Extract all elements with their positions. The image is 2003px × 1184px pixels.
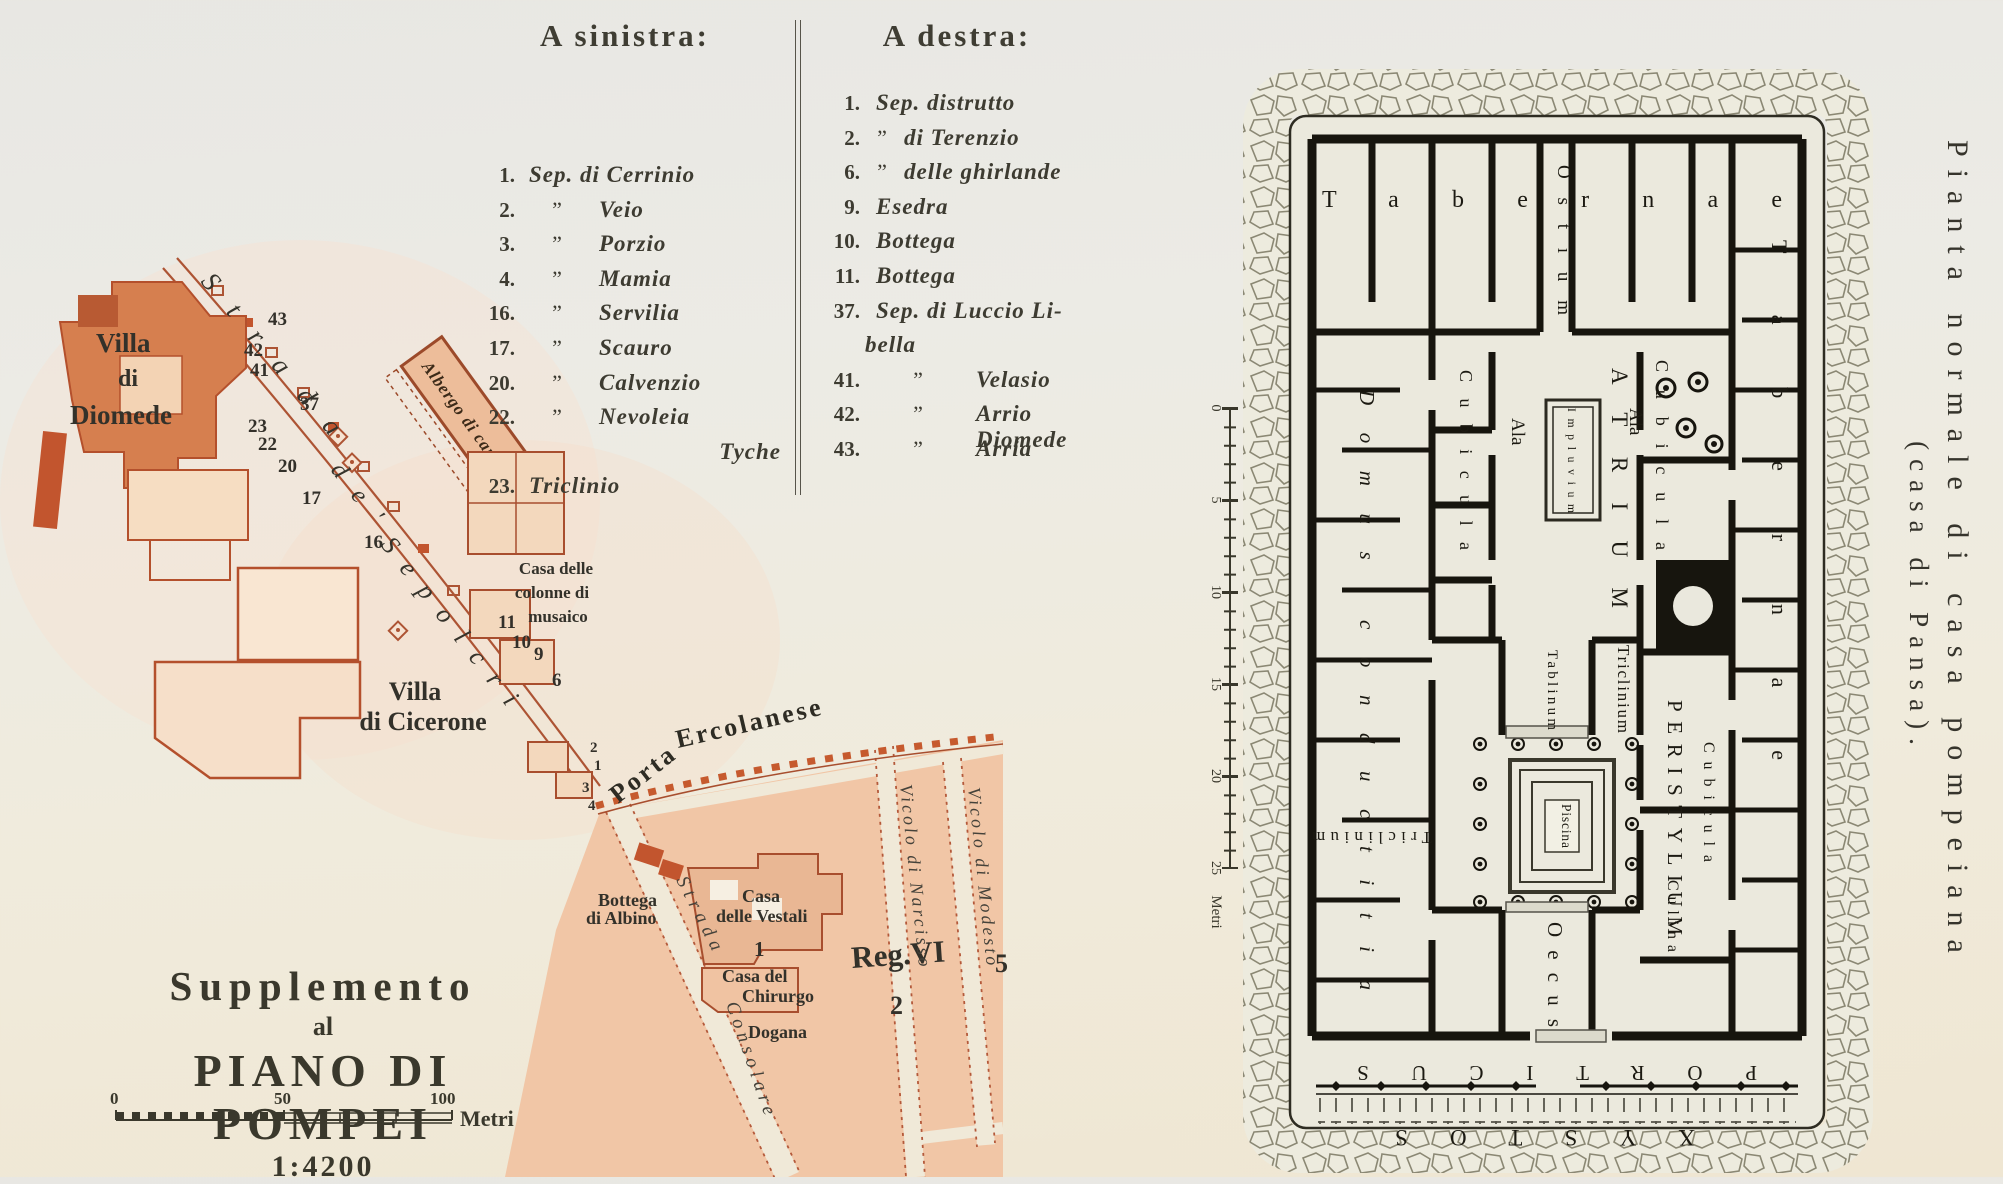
title-block: Supplemento al PIANO DI POMPEI 1:4200 <box>88 962 558 1184</box>
casa-colonne-label-2: colonne di <box>515 583 589 602</box>
legend-row: 2.”Veio <box>455 197 795 232</box>
item-number: 2. <box>812 126 860 151</box>
item-number: 43. <box>812 437 860 462</box>
item-name: bella <box>865 332 1102 358</box>
ditto-mark: ” <box>515 231 599 257</box>
num-9: 9 <box>534 644 544 665</box>
scale-0: 0 <box>1208 405 1223 412</box>
villa-cicerone-label-2: di Cicerone <box>359 707 486 736</box>
legend-row-continuation: bella <box>812 332 1102 367</box>
ditto-mark: ” <box>515 370 599 396</box>
reg-vi-2: 2 <box>890 991 903 1020</box>
legend-row: 6.”delle ghirlande <box>812 159 1102 194</box>
caption-line-1: Pianta normale di casa pompeiana <box>1940 140 1974 1055</box>
item-name: Porzio <box>599 231 795 257</box>
item-number: 3. <box>455 232 515 257</box>
item-name: Calvenzio <box>599 370 795 396</box>
scale-15: 15 <box>1208 677 1223 691</box>
item-number: 42. <box>812 402 860 427</box>
legend-row: 1.Sep. di Cerrinio <box>455 162 795 197</box>
legend-divider <box>795 20 801 495</box>
item-number: 9. <box>812 195 860 220</box>
legend-right-heading: A destra: <box>812 18 1102 54</box>
ditto-mark: ” <box>515 197 599 223</box>
item-number: 16. <box>455 301 515 326</box>
item-name: Veio <box>599 197 795 223</box>
oven-mouth <box>1673 586 1713 626</box>
legend-row: 9.Esedra <box>812 194 1102 229</box>
legend-row: 10.Bottega <box>812 228 1102 263</box>
num-3: 3 <box>582 780 590 796</box>
legend-left-column: A sinistra: 1.Sep. di Cerrinio 2.”Veio 3… <box>455 18 795 436</box>
scale-20: 20 <box>1208 769 1223 783</box>
num-11: 11 <box>498 612 516 633</box>
legend-right-column: A destra: 1.Sep. distrutto 2.”di Terenzi… <box>812 18 1102 471</box>
bottega-albino-label-2: di Albino <box>586 908 657 928</box>
item-name: di Terenzio <box>904 125 1102 151</box>
scale-25: 25 <box>1208 861 1223 875</box>
legend-row: 22.”Nevoleia <box>455 404 795 439</box>
item-number: 22. <box>455 405 515 430</box>
item-number: 23. <box>455 474 515 499</box>
caption-line-2: (casa di Pansa). <box>1903 140 1934 1055</box>
legend-row-continuation: Tyche <box>455 439 795 474</box>
item-name: Velasio <box>976 367 1102 393</box>
item-name: Esedra <box>876 194 1102 220</box>
item-name: Nevoleia <box>599 404 795 430</box>
item-name: Bottega <box>876 263 1102 289</box>
item-number: 6. <box>812 160 860 185</box>
ditto-mark: ” <box>860 125 904 151</box>
casa-chirurgo-label-1: Casa del <box>722 966 788 986</box>
item-name: delle ghirlande <box>904 159 1102 185</box>
title-scale-ratio: 1:4200 <box>88 1150 558 1184</box>
num-37: 37 <box>300 394 320 415</box>
num-6: 6 <box>552 670 562 691</box>
villa-cicerone-label-1: Villa <box>389 677 441 706</box>
casa-chirurgo-label-2: Chirurgo <box>742 986 814 1006</box>
num-16: 16 <box>364 532 383 553</box>
item-number: 1. <box>455 163 515 188</box>
legend-row: 20.”Calvenzio <box>455 370 795 405</box>
item-name: Servilia <box>599 300 795 326</box>
num-17: 17 <box>302 488 322 509</box>
ditto-mark: ” <box>860 401 976 427</box>
title-line-2: al <box>88 1012 558 1042</box>
ala-left-label: Ala <box>1507 418 1528 446</box>
num-43: 43 <box>268 309 287 330</box>
legend-row: 1.Sep. distrutto <box>812 90 1102 125</box>
num-42: 42 <box>244 340 263 361</box>
casa-di-pansa-plan: Tabernae Ostium ATRIUM Impluvium Cubicul… <box>1208 92 1850 1150</box>
item-name: Mamia <box>599 266 795 292</box>
ditto-mark: ” <box>515 335 599 361</box>
dogana-label: Dogana <box>748 1022 807 1042</box>
casa-colonne-label-1: Casa delle <box>519 559 594 578</box>
item-name: Scauro <box>599 335 795 361</box>
legend-left-heading: A sinistra: <box>455 18 795 54</box>
scanned-pompeii-map-page: { "legend": { "left": { "heading": "A si… <box>0 0 2003 1177</box>
num-22: 22 <box>258 434 277 455</box>
item-name: Triclinio <box>529 473 795 499</box>
plan-scale-bar: 0 5 10 15 20 25 Metri <box>1208 405 1230 929</box>
scale-10: 10 <box>1208 585 1223 599</box>
casa-colonne-label-3: musaico <box>528 607 588 626</box>
item-name: Arria <box>976 436 1102 462</box>
xystos-hatch <box>1318 1098 1796 1124</box>
num-vestali-1: 1 <box>754 937 765 961</box>
legend-row: 16.”Servilia <box>455 300 795 335</box>
item-number: 37. <box>812 299 860 324</box>
item-number: 1. <box>812 91 860 116</box>
legend-row: 43.”Arria <box>812 436 1102 471</box>
ditto-mark: ” <box>515 266 599 292</box>
num-2: 2 <box>590 740 598 756</box>
casa-vestali-label-2: delle Vestali <box>716 906 808 926</box>
legend-row: 2.”di Terenzio <box>812 125 1102 160</box>
item-name: Bottega <box>876 228 1102 254</box>
casa-vestali-label-1: Casa <box>742 886 780 906</box>
scale-unit: Metri <box>1208 895 1224 928</box>
item-name: Sep. di Luccio Li- <box>876 298 1102 324</box>
bottega-albino-label-1: Bottega <box>598 890 657 910</box>
legend-row: 4.”Mamia <box>455 266 795 301</box>
num-20: 20 <box>278 456 297 477</box>
legend-row: 23.Triclinio <box>455 473 795 508</box>
num-4: 4 <box>588 798 596 814</box>
item-number: 20. <box>455 371 515 396</box>
ditto-mark: ” <box>860 436 976 462</box>
legend-row: 17.”Scauro <box>455 335 795 370</box>
item-name: Sep. distrutto <box>876 90 1102 116</box>
item-number: 11. <box>812 264 860 289</box>
item-name: Tyche <box>529 439 795 465</box>
ditto-mark: ” <box>860 159 904 185</box>
title-line-3: PIANO DI POMPEI <box>88 1044 558 1150</box>
item-number: 4. <box>455 267 515 292</box>
item-number: 41. <box>812 368 860 393</box>
legend-row: 42.”Arrio Diomede <box>812 401 1102 436</box>
tablinum-label: Tablinum <box>1544 650 1560 730</box>
num-10: 10 <box>512 632 531 653</box>
title-line-1: Supplemento <box>88 962 558 1010</box>
triclinium-right-label: Triclinium <box>1614 645 1633 733</box>
piscina-label: Piscina <box>1559 804 1574 848</box>
item-number: 17. <box>455 336 515 361</box>
legend-row: 3.”Porzio <box>455 231 795 266</box>
villa-diomede-label-3: Diomede <box>70 400 172 430</box>
villa-diomede-label-1: Villa <box>96 328 151 358</box>
scale-5: 5 <box>1208 497 1223 504</box>
num-41: 41 <box>250 360 269 381</box>
plan-caption: Pianta normale di casa pompeiana (casa d… <box>1903 140 1974 1055</box>
impluvium-label: Impluvium <box>1565 408 1577 513</box>
ala-right-label: Ala <box>1625 408 1646 436</box>
ditto-mark: ” <box>515 300 599 326</box>
item-name: Sep. di Cerrinio <box>529 162 795 188</box>
legend-row: 41.”Velasio <box>812 367 1102 402</box>
item-number: 10. <box>812 229 860 254</box>
item-number: 2. <box>455 198 515 223</box>
legend-row: 37.Sep. di Luccio Li- <box>812 298 1102 333</box>
ditto-mark: ” <box>860 367 976 393</box>
villa-diomede-label-2: di <box>118 366 138 392</box>
num-1: 1 <box>594 758 602 774</box>
ditto-mark: ” <box>515 404 599 430</box>
legend-row: 11.Bottega <box>812 263 1102 298</box>
